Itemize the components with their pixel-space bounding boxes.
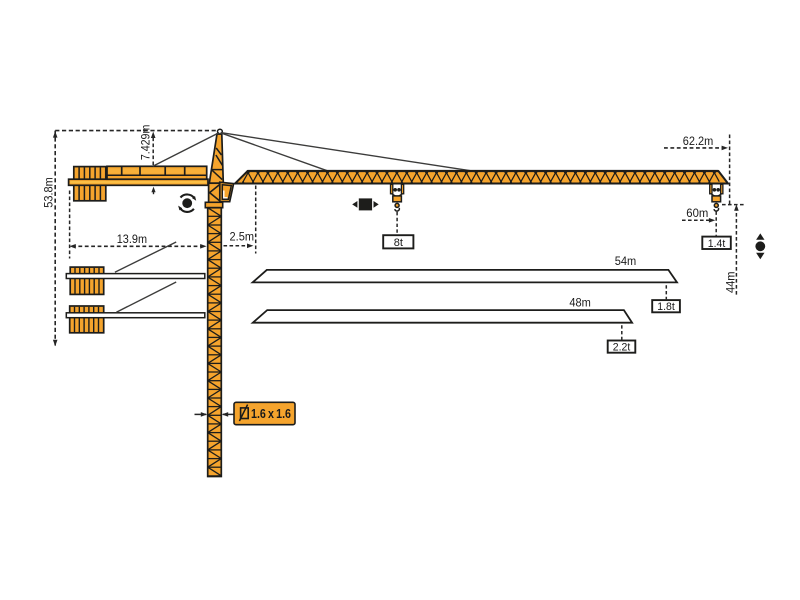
svg-text:53.8m: 53.8m (42, 177, 56, 208)
svg-text:2.5m: 2.5m (230, 230, 255, 244)
svg-text:2.2t: 2.2t (613, 342, 631, 354)
svg-text:62.2m: 62.2m (683, 134, 714, 148)
svg-text:7.429m: 7.429m (139, 125, 153, 161)
svg-text:54m: 54m (615, 254, 637, 268)
svg-text:1.6 x 1.6: 1.6 x 1.6 (251, 406, 291, 421)
svg-text:48m: 48m (569, 295, 591, 309)
svg-text:60m: 60m (686, 208, 708, 220)
svg-text:1.8t: 1.8t (657, 301, 675, 313)
svg-text:44m: 44m (723, 272, 737, 294)
svg-text:1.4t: 1.4t (708, 238, 726, 250)
svg-text:8t: 8t (394, 237, 403, 249)
svg-text:13.9m: 13.9m (117, 232, 147, 246)
